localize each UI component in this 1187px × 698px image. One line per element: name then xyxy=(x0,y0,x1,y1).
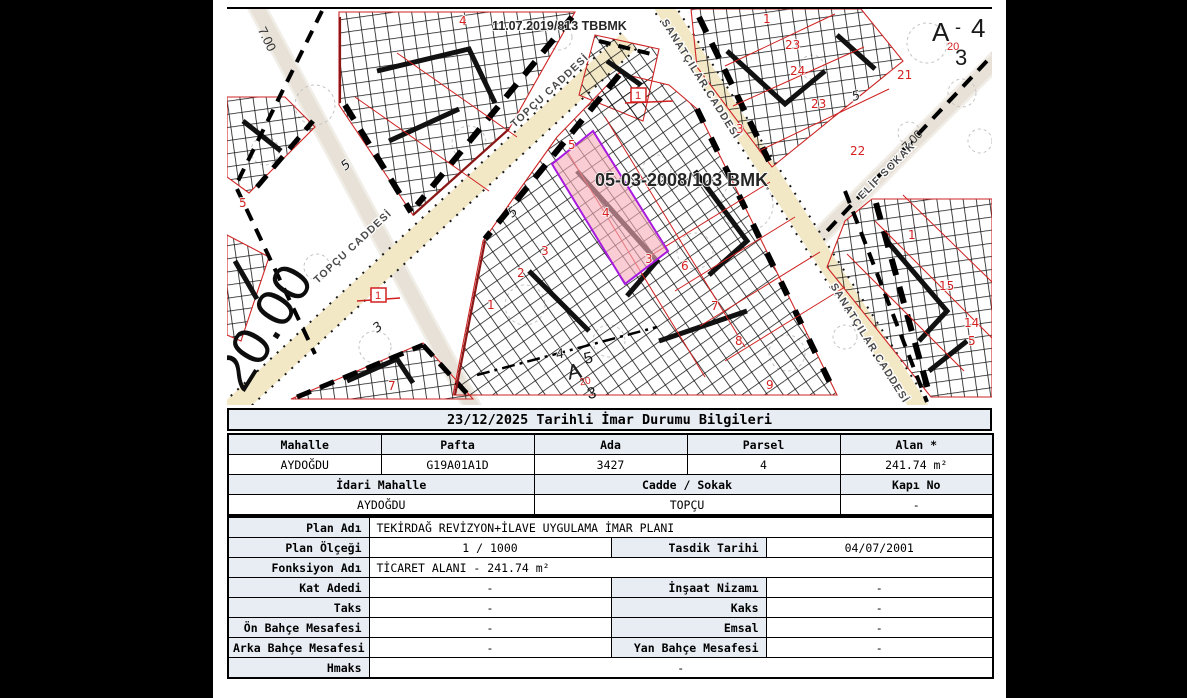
report-title: 23/12/2025 Tarihli İmar Durumu Bilgileri xyxy=(227,408,992,431)
door-marker-number: 1 xyxy=(375,290,381,302)
parcel-number: 5 xyxy=(968,334,976,348)
parcel-number: 1 xyxy=(487,298,495,312)
table-row: AYDOĞDU G19A01A1D 3427 4 241.74 m² xyxy=(228,455,993,475)
parcel-number: 21 xyxy=(897,68,912,82)
parcel-number: 8 xyxy=(735,334,743,348)
cell-parsel: 4 xyxy=(687,455,840,475)
parcel-number: 9 xyxy=(766,378,774,392)
parcel-number: 5 xyxy=(568,138,576,152)
col-header: Pafta xyxy=(381,434,534,455)
cell-cadde-sokak: TOPÇU xyxy=(534,495,840,516)
parcel-number: 22 xyxy=(850,144,865,158)
parcel-number: 3 xyxy=(645,252,653,266)
row-label: Emsal xyxy=(611,618,766,638)
cell-kat-adedi: - xyxy=(369,578,611,598)
table-row: AYDOĞDU TOPÇU - xyxy=(228,495,993,516)
table-row: Taks - Kaks - xyxy=(228,598,993,618)
parcel-number: 5 xyxy=(239,196,247,210)
parcel-number: 24 xyxy=(790,64,805,78)
cell-hmaks: - xyxy=(369,658,993,679)
location-table: Mahalle Pafta Ada Parsel Alan * AYDOĞDU … xyxy=(227,433,994,516)
row-label: Taks xyxy=(228,598,369,618)
col-header: Ada xyxy=(534,434,687,455)
door-marker: 1 xyxy=(371,288,386,302)
cell-alan: 241.74 m² xyxy=(840,455,993,475)
parcel-number: 15 xyxy=(939,279,954,293)
col-header: Mahalle xyxy=(228,434,381,455)
cell-yan-bahce: - xyxy=(766,638,993,658)
row-label: Yan Bahçe Mesafesi xyxy=(611,638,766,658)
cell-ada: 3427 xyxy=(534,455,687,475)
table-row: Arka Bahçe Mesafesi - Yan Bahçe Mesafesi… xyxy=(228,638,993,658)
parcel-number: 23 xyxy=(811,97,826,111)
row-label: Plan Adı xyxy=(228,517,369,538)
cell-fonksiyon-adi: TİCARET ALANI - 241.74 m² xyxy=(369,558,993,578)
cell-plan-adi: TEKİRDAĞ REVİZYON+İLAVE UYGULAMA İMAR PL… xyxy=(369,517,993,538)
parcel-number: 4 xyxy=(459,14,467,28)
col-header: Kapı No xyxy=(840,475,993,495)
zoning-map-svg: 11.07.2019/813 TBBMK 05-03-2008/103 BMK … xyxy=(227,9,992,405)
parcel-number: 14 xyxy=(964,316,979,330)
row-label: Kat Adedi xyxy=(228,578,369,598)
cell-kapi-no: - xyxy=(840,495,993,516)
parcel-number: 1 xyxy=(908,228,916,242)
plan-table: Plan Adı TEKİRDAĞ REVİZYON+İLAVE UYGULAM… xyxy=(227,516,994,679)
row-label: Fonksiyon Adı xyxy=(228,558,369,578)
col-header: Parsel xyxy=(687,434,840,455)
decision-note: 11.07.2019/813 TBBMK xyxy=(492,19,627,33)
table-row: Ön Bahçe Mesafesi - Emsal - xyxy=(228,618,993,638)
row-label: Hmaks xyxy=(228,658,369,679)
zoning-map: 11.07.2019/813 TBBMK 05-03-2008/103 BMK … xyxy=(227,9,992,405)
row-label: Kaks xyxy=(611,598,766,618)
parcel-number: 1 xyxy=(763,12,771,26)
row-label: Plan Ölçeği xyxy=(228,538,369,558)
col-header: Alan * xyxy=(840,434,993,455)
table-row: Kat Adedi - İnşaat Nizamı - xyxy=(228,578,993,598)
parcel-number: 3 xyxy=(541,244,549,258)
col-header: İdari Mahalle xyxy=(228,475,534,495)
parcel-number: 6 xyxy=(681,259,689,273)
parcel-number: 7 xyxy=(711,299,719,313)
row-label: Ön Bahçe Mesafesi xyxy=(228,618,369,638)
zoning-floors: 4 xyxy=(971,13,985,43)
cell-mahalle: AYDOĞDU xyxy=(228,455,381,475)
zoning-density: 3 xyxy=(955,45,967,70)
col-header: Cadde / Sokak xyxy=(534,475,840,495)
parcel-number: 3 xyxy=(736,122,744,136)
door-marker-number: 1 xyxy=(635,90,641,102)
zoning-dash: - xyxy=(955,17,961,37)
cell-kaks: - xyxy=(766,598,993,618)
door-marker: 1 xyxy=(631,88,646,102)
cell-arka-bahce: - xyxy=(369,638,611,658)
cell-tasdik-tarihi: 04/07/2001 xyxy=(766,538,993,558)
cell-insaat-nizami: - xyxy=(766,578,993,598)
table-row: İdari Mahalle Cadde / Sokak Kapı No xyxy=(228,475,993,495)
parcel-number: 23 xyxy=(785,38,800,52)
table-row: Mahalle Pafta Ada Parsel Alan * xyxy=(228,434,993,455)
parcel-number: 7 xyxy=(388,379,396,393)
row-label: Arka Bahçe Mesafesi xyxy=(228,638,369,658)
parcel-number: 4 xyxy=(602,206,610,220)
cell-idari-mahalle: AYDOĞDU xyxy=(228,495,534,516)
parcel-number: 2 xyxy=(517,266,525,280)
table-row: Plan Adı TEKİRDAĞ REVİZYON+İLAVE UYGULAM… xyxy=(228,517,993,538)
cell-emsal: - xyxy=(766,618,993,638)
table-row: Fonksiyon Adı TİCARET ALANI - 241.74 m² xyxy=(228,558,993,578)
table-row: Plan Ölçeği 1 / 1000 Tasdik Tarihi 04/07… xyxy=(228,538,993,558)
decision-note: 05-03-2008/103 BMK xyxy=(595,170,768,190)
cell-plan-olcegi: 1 / 1000 xyxy=(369,538,611,558)
cell-on-bahce: - xyxy=(369,618,611,638)
table-row: Hmaks - xyxy=(228,658,993,679)
document-page: 11.07.2019/813 TBBMK 05-03-2008/103 BMK … xyxy=(213,0,1006,698)
row-label: Tasdik Tarihi xyxy=(611,538,766,558)
row-label: İnşaat Nizamı xyxy=(611,578,766,598)
cell-taks: - xyxy=(369,598,611,618)
cell-pafta: G19A01A1D xyxy=(381,455,534,475)
